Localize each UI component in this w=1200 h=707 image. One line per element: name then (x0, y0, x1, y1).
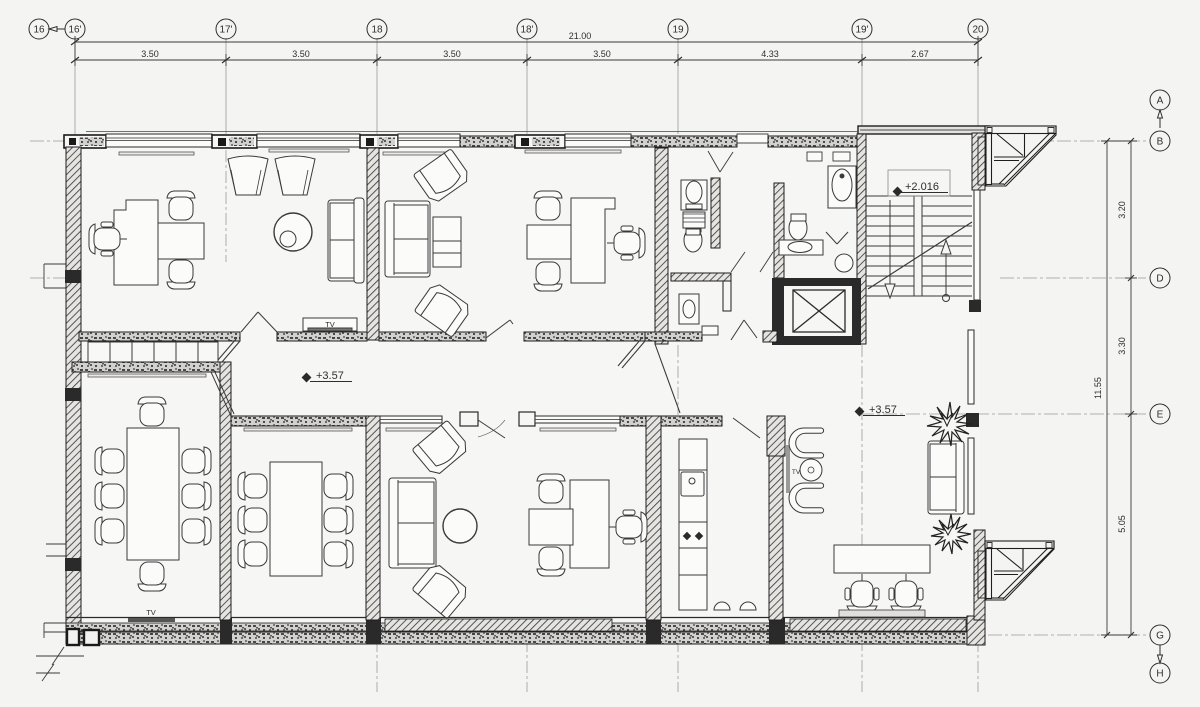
svg-text:A: A (1157, 96, 1164, 107)
svg-text:18: 18 (371, 25, 383, 36)
svg-text:TV: TV (146, 608, 156, 617)
svg-text:16': 16' (68, 25, 81, 36)
svg-text:3.50: 3.50 (443, 49, 461, 59)
svg-text:H: H (1156, 669, 1163, 680)
svg-text:3.20: 3.20 (1117, 201, 1127, 219)
svg-text:TV: TV (792, 469, 801, 476)
svg-text:G: G (1156, 631, 1164, 642)
svg-text:+3.57: +3.57 (316, 370, 344, 382)
svg-text:E: E (1157, 410, 1164, 421)
svg-text:18': 18' (520, 25, 533, 36)
svg-text:21.00: 21.00 (569, 31, 592, 41)
svg-text:3.50: 3.50 (141, 49, 159, 59)
svg-text:2.67: 2.67 (911, 49, 929, 59)
svg-text:TV: TV (325, 320, 335, 329)
svg-text:19': 19' (855, 25, 868, 36)
svg-text:+2.016: +2.016 (905, 181, 939, 193)
svg-text:5.05: 5.05 (1117, 515, 1127, 533)
svg-text:3.50: 3.50 (292, 49, 310, 59)
svg-text:B: B (1157, 137, 1164, 148)
svg-text:4.33: 4.33 (761, 49, 779, 59)
svg-text:16: 16 (33, 25, 45, 36)
svg-text:11.55: 11.55 (1093, 377, 1103, 399)
svg-text:+3.57: +3.57 (869, 404, 897, 416)
svg-text:3.50: 3.50 (593, 49, 611, 59)
svg-text:19: 19 (672, 25, 684, 36)
svg-text:20: 20 (972, 25, 984, 36)
svg-text:17': 17' (219, 25, 232, 36)
svg-text:3.30: 3.30 (1117, 337, 1127, 355)
svg-text:D: D (1156, 274, 1163, 285)
